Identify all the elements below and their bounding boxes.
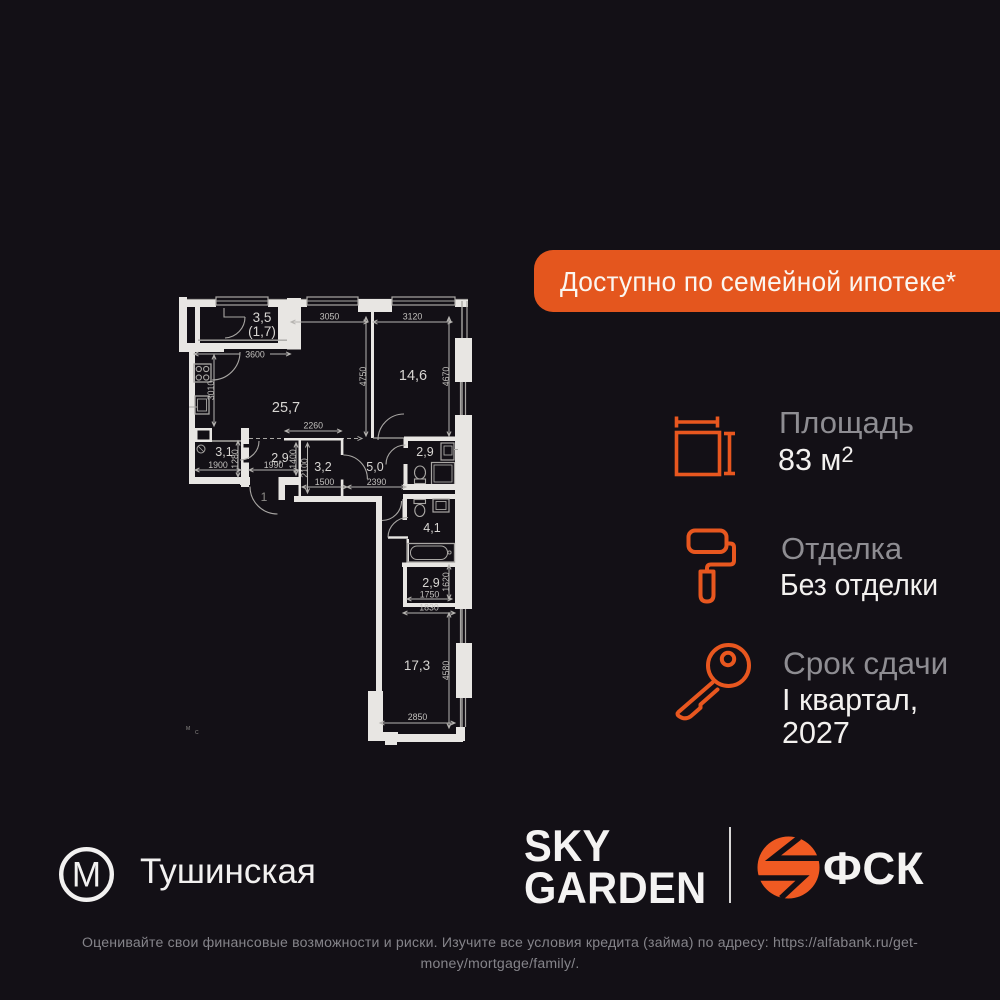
svg-text:4670: 4670 (441, 367, 451, 387)
svg-text:4580: 4580 (441, 661, 451, 681)
svg-text:4750: 4750 (358, 367, 368, 387)
svg-text:М: М (72, 856, 101, 895)
svg-text:5,0: 5,0 (366, 460, 383, 474)
svg-text:3050: 3050 (320, 312, 340, 322)
svg-text:М: М (186, 726, 190, 732)
svg-text:2,9: 2,9 (416, 445, 433, 459)
svg-text:(1,7): (1,7) (248, 324, 276, 339)
svg-text:1750: 1750 (420, 590, 440, 600)
svg-text:25,7: 25,7 (272, 400, 300, 416)
svg-text:2850: 2850 (408, 712, 428, 722)
svg-text:3120: 3120 (403, 312, 423, 322)
svg-text:1500: 1500 (315, 477, 335, 487)
svg-text:3600: 3600 (245, 350, 265, 360)
svg-text:3,2: 3,2 (314, 460, 331, 474)
svg-text:1620: 1620 (441, 572, 451, 592)
svg-text:С: С (195, 730, 199, 736)
svg-text:2,9: 2,9 (271, 451, 288, 465)
svg-text:4,1: 4,1 (423, 521, 440, 535)
svg-text:1900: 1900 (208, 460, 228, 470)
svg-text:17,3: 17,3 (404, 658, 430, 673)
svg-text:3010: 3010 (206, 381, 216, 401)
svg-text:2100: 2100 (300, 458, 310, 478)
svg-text:1830: 1830 (419, 603, 439, 613)
svg-text:1: 1 (261, 490, 268, 504)
svg-text:3,1: 3,1 (215, 445, 232, 459)
svg-text:3,5: 3,5 (253, 310, 272, 325)
svg-text:2,9: 2,9 (422, 576, 439, 590)
svg-text:14,6: 14,6 (399, 368, 427, 384)
svg-text:1400: 1400 (288, 449, 298, 469)
svg-text:2390: 2390 (367, 477, 387, 487)
svg-text:2260: 2260 (303, 421, 323, 431)
